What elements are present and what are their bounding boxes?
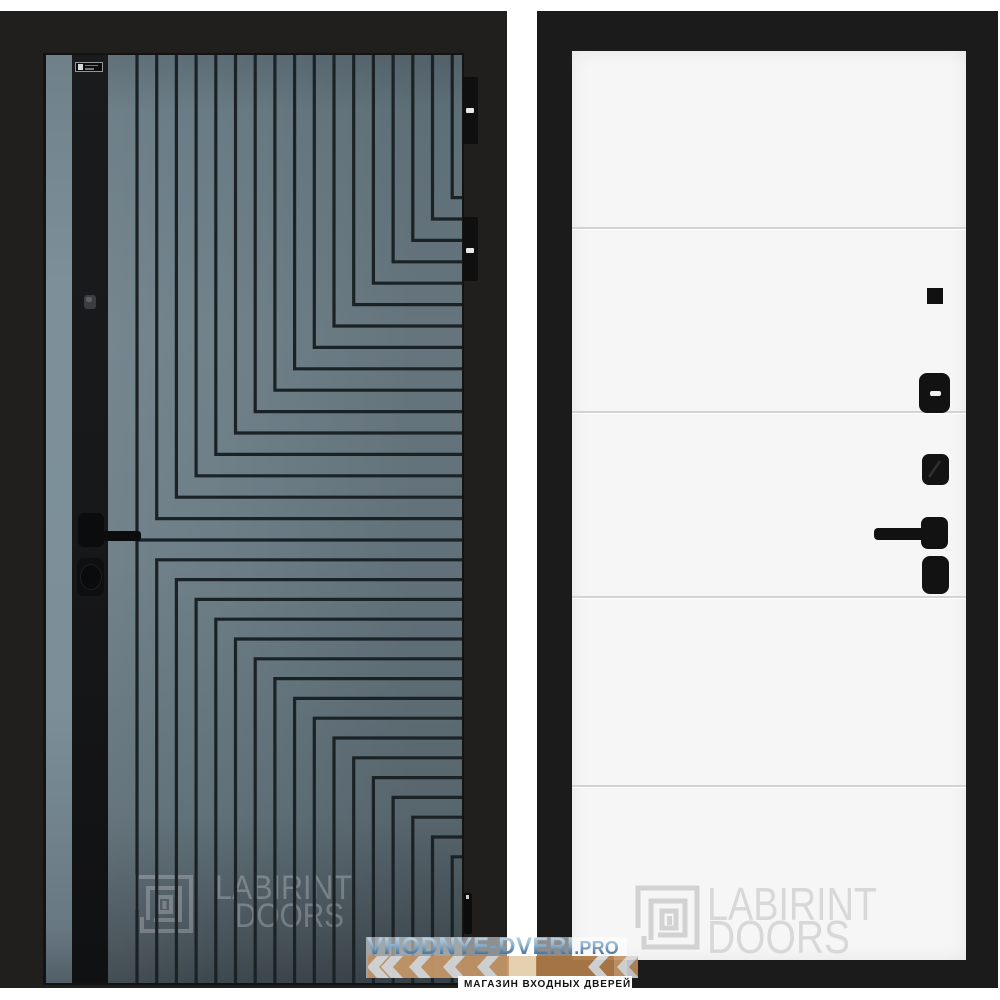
svg-text:DOORS: DOORS xyxy=(707,911,850,960)
